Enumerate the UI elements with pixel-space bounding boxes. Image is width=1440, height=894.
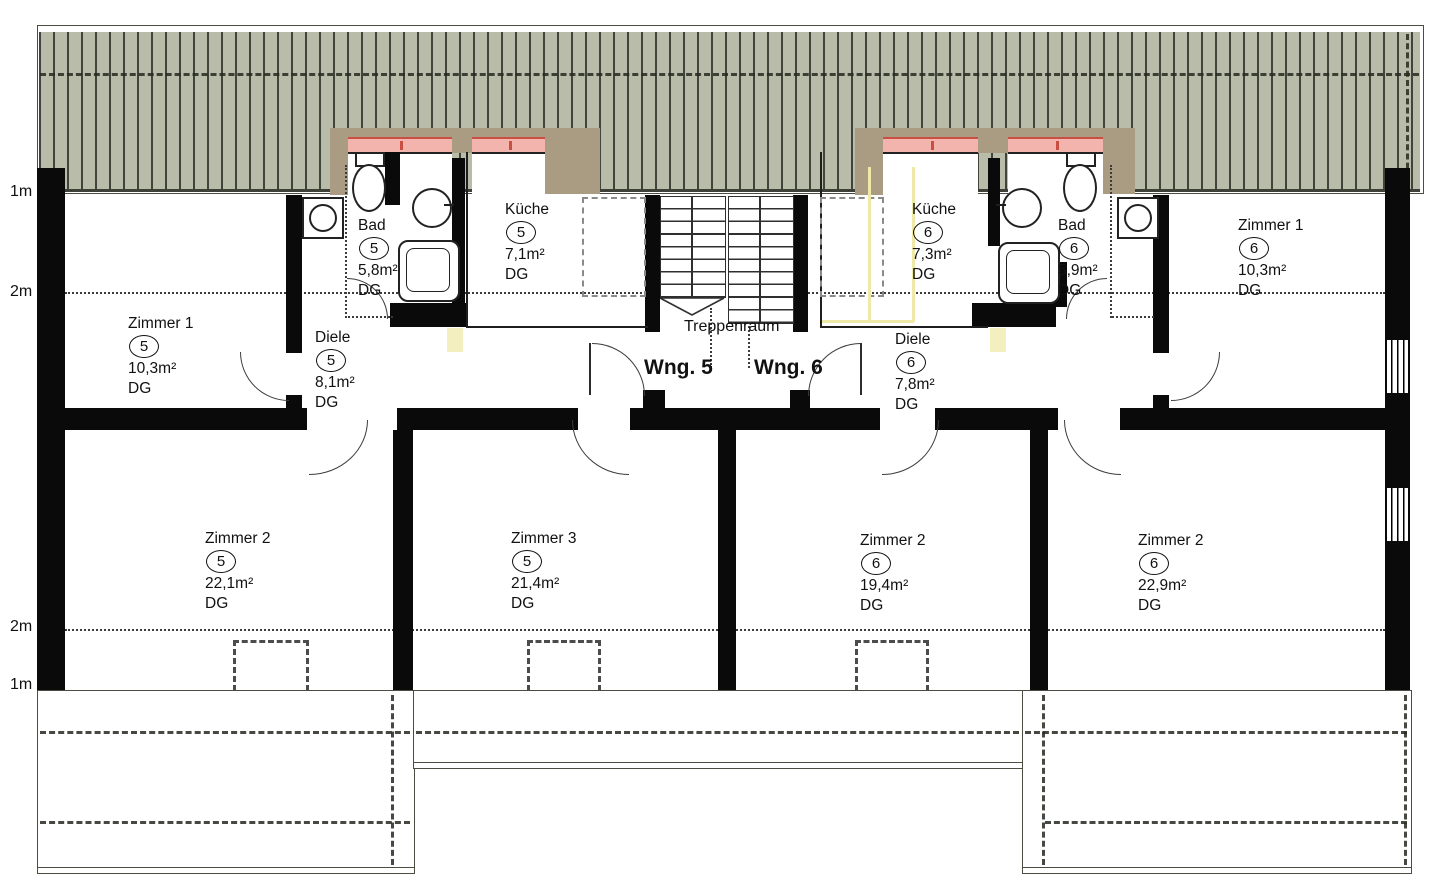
roof-dash-line	[416, 731, 1019, 734]
room-label-bad-wng6: Bad 6 5,9m² DG	[1058, 216, 1098, 301]
apartment-number-badge: 5	[129, 335, 159, 358]
room-area: 22,1m²	[205, 574, 270, 594]
door-arc-zimmer2-wng5	[309, 420, 368, 475]
kitchen-mark	[868, 167, 871, 322]
room-floor: DG	[505, 265, 549, 285]
kitchen-mark	[822, 320, 914, 323]
apartment-number-badge: 6	[913, 221, 943, 244]
wall	[972, 303, 1056, 327]
skylight-outline	[855, 640, 929, 691]
door-arc-zimmer1-wng6	[1171, 352, 1220, 401]
door-arc-zimmer1-wng5	[240, 352, 289, 401]
room-label-kueche-wng6: Küche 6 7,3m² DG	[912, 200, 956, 285]
roof-eave-board	[414, 762, 1023, 768]
room-area: 22,9m²	[1138, 576, 1203, 596]
room-label-zimmer2-wng6: Zimmer 2 6 19,4m² DG	[860, 531, 925, 616]
wall-lower	[393, 430, 413, 690]
room-name: Zimmer 1	[1238, 216, 1303, 236]
door-arc-zimmer2b-wng6	[1064, 420, 1121, 475]
wall-mid	[935, 408, 1058, 430]
room-floor: DG	[1238, 281, 1303, 301]
apartment-number-badge: 5	[512, 550, 542, 573]
roof-eave-board	[1023, 867, 1411, 873]
roof-eave-board	[38, 867, 414, 873]
room-name: Zimmer 2	[860, 531, 925, 551]
room-name: Zimmer 2	[205, 529, 270, 549]
roof-dash-line	[40, 731, 410, 734]
dormer-wall	[978, 133, 1008, 153]
room-name: Bad	[358, 216, 398, 236]
room-floor: DG	[128, 379, 193, 399]
roof-dash-line	[1404, 695, 1407, 865]
room-area: 7,3m²	[912, 245, 956, 265]
roof-top-hatch	[39, 32, 1420, 192]
dormer-wall	[545, 128, 600, 194]
door-arc-zimmer3-wng5	[572, 420, 629, 475]
room-label-zimmer1-wng5: Zimmer 1 5 10,3m² DG	[128, 314, 193, 399]
room-floor: DG	[205, 594, 270, 614]
door-arc-entry-wng5	[592, 343, 645, 396]
room-label-diele-wng5: Diele 5 8,1m² DG	[315, 328, 355, 413]
room-name: Küche	[505, 200, 549, 220]
heating-mark	[990, 328, 1006, 352]
room-floor: DG	[895, 395, 935, 415]
room-name: Zimmer 1	[128, 314, 193, 334]
toilet	[1063, 164, 1097, 212]
apartment-label-wng6: Wng. 6	[754, 356, 823, 380]
room-floor: DG	[511, 594, 576, 614]
door-leaf	[589, 343, 591, 395]
apartment-number-badge: 6	[896, 351, 926, 374]
kitchen-counter-outline	[820, 197, 884, 297]
shower-tray	[406, 248, 450, 292]
shower-tray	[1006, 250, 1050, 294]
dormer-wall	[1103, 128, 1135, 194]
wall-stairwell-right	[793, 195, 808, 332]
apartment-number-badge: 6	[1139, 552, 1169, 575]
room-floor: DG	[1138, 596, 1203, 616]
measure-1m-bottom: 1m	[10, 676, 32, 694]
window-mullion	[509, 141, 512, 150]
room-area: 21,4m²	[511, 574, 576, 594]
room-name: Diele	[895, 330, 935, 350]
apartment-number-badge: 5	[506, 221, 536, 244]
stair-flight-midline	[759, 196, 761, 322]
room-label-zimmer3-wng5: Zimmer 3 5 21,4m² DG	[511, 529, 576, 614]
shower	[998, 242, 1060, 304]
room-name: Zimmer 2	[1138, 531, 1203, 551]
room-floor: DG	[358, 281, 398, 301]
thin-wall	[466, 152, 468, 328]
roof-dash-line	[1406, 34, 1409, 187]
room-name: Bad	[1058, 216, 1098, 236]
room-label-kueche-wng5: Küche 5 7,1m² DG	[505, 200, 549, 285]
apartment-number-badge: 5	[316, 349, 346, 372]
bad6-open-boundary	[1110, 165, 1112, 318]
washing-machine-drum	[309, 204, 337, 232]
wall-lower	[1030, 430, 1048, 690]
wall	[385, 152, 400, 205]
apartment-number-badge: 5	[359, 237, 389, 260]
toilet	[352, 164, 386, 212]
door-arc-zimmer2-wng6	[882, 420, 939, 475]
room-name: Zimmer 3	[511, 529, 576, 549]
roof-dash-line	[40, 821, 410, 824]
dormer-interior	[883, 152, 978, 195]
room-area: 7,1m²	[505, 245, 549, 265]
roof-top	[37, 25, 1424, 194]
window-mullion	[1056, 141, 1059, 150]
apartment-number-badge: 5	[206, 550, 236, 573]
skylight-outline	[233, 640, 309, 691]
measure-2m-bottom: 2m	[10, 618, 32, 636]
room-name: Diele	[315, 328, 355, 348]
roof-dash-line	[40, 73, 1419, 76]
room-floor: DG	[860, 596, 925, 616]
roof-dash-line	[1025, 731, 1407, 734]
bad6-open-boundary	[1112, 316, 1154, 318]
window-mullion	[400, 141, 403, 150]
room-area: 10,3m²	[1238, 261, 1303, 281]
roof-dash-line	[391, 695, 394, 865]
room-name: Küche	[912, 200, 956, 220]
door-leaf	[860, 343, 862, 395]
room-label-bad-wng5: Bad 5 5,8m² DG	[358, 216, 398, 301]
wall	[790, 390, 810, 408]
stair-flight-left	[660, 196, 726, 298]
stairwell-label: Treppenraum	[684, 318, 779, 336]
apartment-number-badge: 6	[861, 552, 891, 575]
stair-arrow	[658, 296, 726, 318]
sink	[412, 188, 452, 228]
stair-flight-midline	[691, 196, 693, 296]
roof-dash-line	[1042, 695, 1045, 865]
wall	[988, 158, 1000, 246]
room-label-zimmer2-wng5: Zimmer 2 5 22,1m² DG	[205, 529, 270, 614]
dormer-wall	[452, 133, 472, 153]
shower	[398, 240, 460, 302]
thin-wall	[820, 326, 988, 328]
wall-mid	[630, 408, 880, 430]
room-floor: DG	[315, 393, 355, 413]
apartment-number-badge: 6	[1059, 237, 1089, 260]
sink	[1002, 188, 1042, 228]
wall	[286, 195, 302, 353]
floor-plan: 1m 2m 2m 1m Zimmer 1 5 10,3m² DG Bad 5 5…	[0, 0, 1440, 894]
apartment-label-wng5: Wng. 5	[644, 356, 713, 380]
roof-bottom-middle	[413, 690, 1024, 769]
roof-bottom-left	[37, 690, 415, 874]
room-area: 10,3m²	[128, 359, 193, 379]
wall	[643, 390, 665, 408]
room-label-diele-wng6: Diele 6 7,8m² DG	[895, 330, 935, 415]
measure-1m-top: 1m	[10, 183, 32, 201]
room-floor: DG	[1058, 281, 1098, 301]
sink-tap	[996, 204, 1006, 206]
kitchen-counter-outline	[582, 197, 646, 297]
dormer-interior	[472, 152, 545, 195]
skylight-outline	[527, 640, 601, 691]
roof-bottom-right	[1022, 690, 1412, 874]
gable-window	[1387, 340, 1408, 393]
room-area: 5,8m²	[358, 261, 398, 281]
room-label-zimmer2b-wng6: Zimmer 2 6 22,9m² DG	[1138, 531, 1203, 616]
room-area: 5,9m²	[1058, 261, 1098, 281]
wall-mid	[1120, 408, 1410, 430]
thin-wall	[466, 326, 648, 328]
wall-party	[718, 430, 736, 690]
room-area: 8,1m²	[315, 373, 355, 393]
room-label-zimmer1-wng6: Zimmer 1 6 10,3m² DG	[1238, 216, 1303, 301]
roof-dash-line	[1045, 821, 1407, 824]
window-mullion	[931, 141, 934, 150]
apartment-number-badge: 6	[1239, 237, 1269, 260]
sink-tap	[444, 204, 454, 206]
gable-window	[1387, 488, 1408, 541]
wall-mid	[37, 408, 307, 430]
stair-flight-right	[728, 196, 794, 324]
room-area: 19,4m²	[860, 576, 925, 596]
heating-mark	[447, 328, 463, 352]
washing-machine-drum	[1124, 204, 1152, 232]
measure-2m-top: 2m	[10, 283, 32, 301]
room-floor: DG	[912, 265, 956, 285]
wall-mid	[397, 408, 578, 430]
room-area: 7,8m²	[895, 375, 935, 395]
